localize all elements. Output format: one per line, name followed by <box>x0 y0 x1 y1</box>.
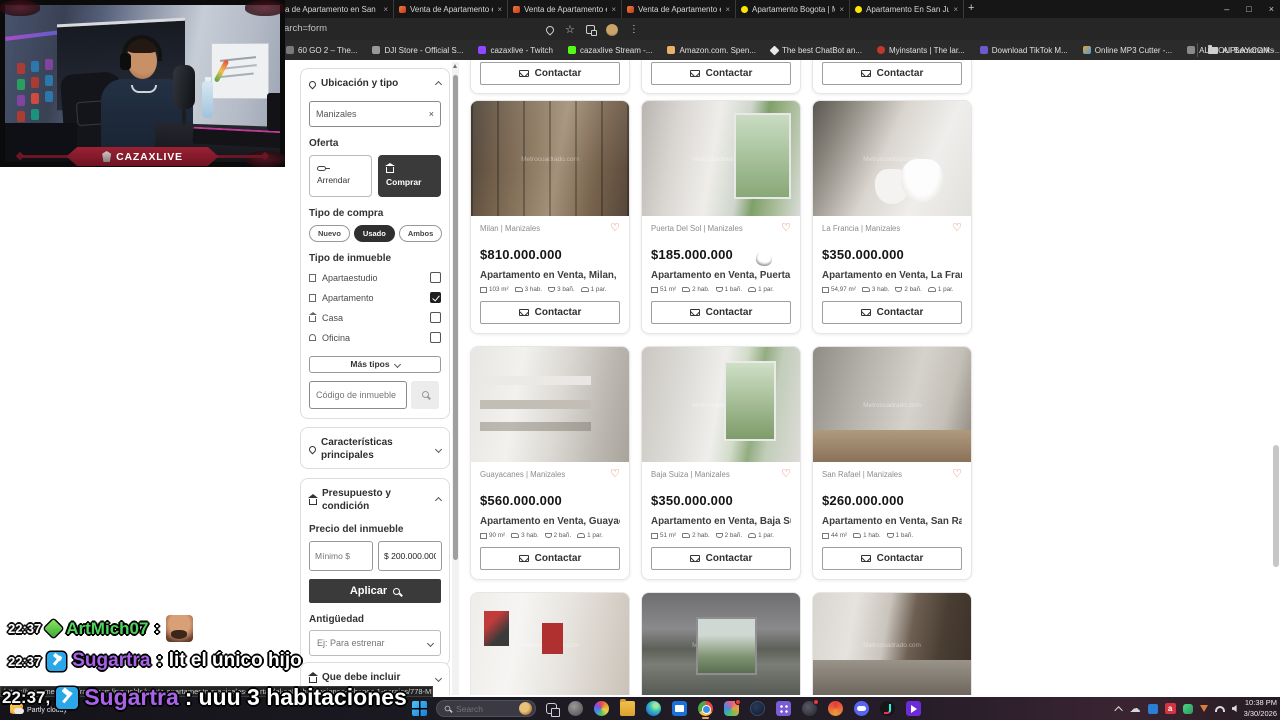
contactar-button[interactable]: Contactar <box>651 301 791 324</box>
section-header[interactable]: Características principales <box>309 437 441 462</box>
game-launcher-icon[interactable] <box>802 701 817 716</box>
bath-icon <box>548 287 555 292</box>
minimize-button[interactable]: – <box>1224 4 1229 14</box>
bed-icon <box>511 533 519 538</box>
bed-icon <box>682 287 690 292</box>
listing-title[interactable]: Apartamento en Venta, Milan, Ma... <box>480 270 620 281</box>
listing-card[interactable]: Metrocuadrado.com La Francia | Manizales… <box>812 100 972 334</box>
listing-specs: 90 m² 3 hab. 2 bañ. 1 par. <box>480 532 620 539</box>
profile-avatar[interactable] <box>606 24 618 36</box>
listing-card[interactable]: Metrocuadrado.com Puerta Del Sol | Maniz… <box>641 100 801 334</box>
house-icon <box>386 167 394 173</box>
checkbox-apartamento-checked[interactable] <box>430 292 441 303</box>
listing-title[interactable]: Apartamento en Venta, La Francia... <box>822 270 962 281</box>
windows-taskbar: Partly cloudy ☁ <box>0 697 1280 720</box>
window-controls: – □ × <box>1224 0 1274 18</box>
parking-icon <box>748 287 756 292</box>
favorite-heart-icon[interactable]: ♡ <box>610 469 620 479</box>
listing-card[interactable]: Metrocuadrado.com Baja Suiza | Manizales… <box>641 346 801 580</box>
precio-maximo-input[interactable] <box>378 541 442 571</box>
listing-photo[interactable]: Metrocuadrado.com <box>642 101 800 216</box>
listing-location: Guayacanes | Manizales <box>480 470 565 479</box>
location-search-box: × <box>309 101 441 127</box>
water-bottle <box>202 81 213 118</box>
search-icon <box>393 588 400 595</box>
start-button[interactable] <box>412 701 427 716</box>
chevron-down-icon <box>435 446 442 453</box>
listing-location: Puerta Del Sol | Manizales <box>651 224 743 233</box>
listing-location: Milan | Manizales <box>480 224 540 233</box>
tab-6[interactable]: Apartamento En San Juan Bosc × <box>850 0 964 18</box>
listing-specs: 54,97 m² 3 hab. 2 bañ. 1 par. <box>822 286 962 293</box>
discord-icon[interactable] <box>854 701 869 716</box>
contactar-button[interactable]: Contactar <box>651 547 791 570</box>
tabs-container: a de Apartamento en San × Venta de Apart… <box>280 0 964 18</box>
listing-price: $810.000.000 <box>480 247 620 262</box>
favorite-heart-icon[interactable]: ♡ <box>952 223 962 233</box>
location-pin-icon[interactable] <box>544 24 555 35</box>
bookmark-favicon <box>980 46 988 54</box>
listing-title[interactable]: Apartamento en Venta, Guayacan... <box>480 516 620 527</box>
steam-icon[interactable] <box>750 701 765 716</box>
chat-username[interactable]: ArtMich07 <box>66 619 148 639</box>
section-header[interactable]: Que debe incluir <box>309 672 441 685</box>
webcam-photo <box>5 5 280 162</box>
bookmark-favicon <box>1187 46 1195 54</box>
tab-title: Venta de Apartamento en Oro <box>410 5 493 14</box>
building-icon <box>309 294 316 302</box>
toolbar-icons: ☆ ⋮ <box>546 21 1272 38</box>
weather-icon <box>10 701 23 714</box>
notification-dot <box>813 699 819 705</box>
parking-icon <box>748 533 756 538</box>
bookmark-item[interactable]: 60 GO 2 – The... <box>286 46 357 55</box>
favorite-heart-icon[interactable]: ♡ <box>781 469 791 479</box>
listing-card-partial[interactable]: Contactar <box>641 60 801 94</box>
status-bar-url: https://www.metrocuadrado.com/inmueble/v… <box>0 686 433 697</box>
favorite-heart-icon[interactable]: ♡ <box>781 223 791 233</box>
listing-photo[interactable]: Metrocuadrado.com <box>813 347 971 462</box>
green-tray-icon[interactable] <box>1183 704 1193 714</box>
bookmark-item-twitch[interactable]: cazaxlive - Twitch <box>478 46 553 55</box>
bookmark-item[interactable]: DJI Store - Official S... <box>372 46 463 55</box>
pill-nuevo[interactable]: Nuevo <box>309 225 350 242</box>
shirt-collar <box>131 85 157 93</box>
gallery-app-icon[interactable] <box>724 701 739 716</box>
listing-photo[interactable]: Metrocuadrado.com <box>471 347 629 462</box>
envelope-icon <box>861 70 871 77</box>
listing-title[interactable]: Apartamento en Venta, San Rafae... <box>822 516 962 527</box>
chevron-down-icon <box>394 360 401 367</box>
filter-section-presupuesto: Presupuesto y condición Precio del inmue… <box>300 478 450 666</box>
listing-specs: 51 m² 2 hab. 2 bañ. 1 par. <box>651 532 791 539</box>
listing-price: $560.000.000 <box>480 493 620 508</box>
listing-location: Baja Suiza | Manizales <box>651 470 730 479</box>
mas-tipos-button[interactable]: Más tipos <box>309 356 441 373</box>
phone-stand <box>267 93 280 131</box>
type-apartaestudio[interactable]: Apartaestudio <box>309 268 441 288</box>
app-icon[interactable] <box>568 701 583 716</box>
envelope-icon <box>690 309 700 316</box>
tab-title: Venta de Apartamento en Av c <box>638 5 721 14</box>
checkbox-casa[interactable] <box>430 312 441 323</box>
filter-section-ubicacion: Ubicación y tipo × Oferta Arrendar Compr… <box>300 68 450 419</box>
listing-card[interactable]: Metrocuadrado.com Guayacanes | Manizales… <box>470 346 630 580</box>
office-icon <box>309 334 316 341</box>
favorite-heart-icon[interactable]: ♡ <box>952 469 962 479</box>
location-pin-icon <box>308 79 318 89</box>
listing-photo-partial[interactable]: Metrocuadrado.com <box>470 592 630 695</box>
precio-label: Precio del inmueble <box>309 524 441 535</box>
chevron-up-icon <box>435 497 442 504</box>
listing-specs: 44 m² 1 hab. 1 bañ. <box>822 532 962 539</box>
tab-close-icon[interactable]: × <box>953 5 958 14</box>
chat-text: lit el único hijo <box>169 650 302 672</box>
area-icon <box>651 533 658 539</box>
all-bookmarks-button[interactable]: All Bookmarks <box>1197 43 1274 57</box>
tab-2[interactable]: Venta de Apartamento en Oro × <box>394 0 508 18</box>
bed-icon <box>515 287 523 292</box>
section-title: Que debe incluir <box>322 672 431 685</box>
listing-title[interactable]: Apartamento en Venta, Puerta Del... <box>651 270 791 281</box>
parking-icon <box>581 287 589 292</box>
section-title: Ubicación y tipo <box>321 78 431 91</box>
tab-close-icon[interactable]: × <box>611 5 616 14</box>
listing-card[interactable]: Metrocuadrado.com Milan | Manizales♡ $81… <box>470 100 630 334</box>
red-a-tray-icon[interactable]: a <box>1165 703 1176 714</box>
bath-icon <box>895 287 902 292</box>
bookmark-favicon <box>286 46 294 54</box>
stream-banner-wrap: CAZAXLIVE <box>0 147 285 167</box>
twitch-icon <box>478 46 486 54</box>
taskbar-search[interactable] <box>436 700 536 717</box>
chat-message: 22:37 ArtMich07 : <box>8 615 193 642</box>
app-grid-icon[interactable] <box>776 701 791 716</box>
favorite-heart-icon[interactable]: ♡ <box>610 223 620 233</box>
antiguedad-label: Antigüedad <box>309 614 441 625</box>
chevron-down-icon <box>427 639 434 646</box>
envelope-icon <box>519 70 529 77</box>
listing-photo-partial[interactable]: Metrocuadrado.com <box>812 592 972 695</box>
envelope-icon <box>690 70 700 77</box>
bluetooth-icon[interactable] <box>1148 704 1158 714</box>
search-icon <box>445 706 451 712</box>
screen: a de Apartamento en San × Venta de Apart… <box>0 0 1280 720</box>
bath-icon <box>716 287 723 292</box>
photos-app-icon[interactable] <box>594 701 609 716</box>
listing-specs: 103 m² 3 hab. 3 bañ. 1 par. <box>480 286 620 293</box>
clear-icon[interactable]: × <box>429 109 434 119</box>
type-casa[interactable]: Casa <box>309 308 441 328</box>
listing-location: La Francia | Manizales <box>822 224 900 233</box>
folder-icon <box>1208 47 1218 54</box>
area-icon <box>822 287 829 293</box>
tab-3[interactable]: Venta de Apartamento en Ama × <box>508 0 622 18</box>
area-icon <box>822 533 829 539</box>
tab-close-icon[interactable]: × <box>839 5 844 14</box>
bookmark-item[interactable]: Myinstants | The lar... <box>877 46 965 55</box>
codigo-search-button[interactable] <box>411 381 439 409</box>
precio-minimo-input[interactable] <box>309 541 373 571</box>
weather-widget[interactable]: Partly cloudy <box>10 701 67 714</box>
price-inputs <box>309 541 441 571</box>
arrendar-button[interactable]: Arrendar <box>309 155 372 197</box>
media-app-icon[interactable] <box>906 701 921 716</box>
location-search-input[interactable] <box>316 109 425 119</box>
contactar-button[interactable]: Contactar <box>822 62 962 85</box>
taskbar-search-input[interactable] <box>456 704 514 714</box>
metrocuadrado-favicon <box>627 6 634 13</box>
envelope-icon <box>861 555 871 562</box>
listing-price: $260.000.000 <box>822 493 962 508</box>
tab-1[interactable]: a de Apartamento en San × <box>280 0 394 18</box>
aplicar-button[interactable]: Aplicar <box>309 579 441 603</box>
download-arrow-icon[interactable] <box>1200 705 1208 712</box>
kick-icon <box>568 46 576 54</box>
section-title: Características principales <box>321 437 431 462</box>
house-icon <box>309 677 317 683</box>
bath-icon <box>887 533 894 538</box>
page-scrollbar-thumb[interactable] <box>1273 445 1279 567</box>
tipo-compra-label: Tipo de compra <box>309 208 441 219</box>
envelope-icon <box>861 309 871 316</box>
tab-title: Apartamento Bogota | Mercad <box>752 5 835 14</box>
metrocuadrado-favicon <box>513 6 520 13</box>
envelope-icon <box>519 309 529 316</box>
checkbox-apartaestudio[interactable] <box>430 272 441 283</box>
contactar-button[interactable]: Contactar <box>480 62 620 85</box>
stream-banner: CAZAXLIVE <box>67 147 219 166</box>
area-icon <box>480 287 487 293</box>
tab-close-icon[interactable]: × <box>725 5 730 14</box>
edge-browser-icon[interactable] <box>646 701 661 716</box>
address-bar-text[interactable]: arch=form <box>284 23 327 34</box>
area-icon <box>651 287 658 293</box>
listing-photo-partial[interactable]: Metrocuadrado.com <box>641 592 801 695</box>
listing-card[interactable]: Metrocuadrado.com San Rafael | Manizales… <box>812 346 972 580</box>
filter-panel-scrollbar[interactable] <box>452 62 459 695</box>
bookmark-star-icon[interactable]: ☆ <box>565 25 575 35</box>
frame-corner-decoration <box>0 0 40 16</box>
listing-price: $350.000.000 <box>651 493 791 508</box>
listing-photo[interactable]: Metrocuadrado.com <box>813 101 971 216</box>
clock-time: 10:38 PM <box>1244 698 1277 708</box>
clock-date: 3/30/2026 <box>1244 709 1277 719</box>
tab-close-icon[interactable]: × <box>497 5 502 14</box>
bed-icon <box>853 533 861 538</box>
system-tray: ☁ a 10:38 PM 3/30/2026 <box>1117 697 1277 720</box>
antiguedad-select[interactable] <box>309 630 441 656</box>
bed-icon <box>682 533 690 538</box>
bookmark-item[interactable]: Online MP3 Cutter -... <box>1083 46 1172 55</box>
key-icon <box>317 166 326 171</box>
section-title: Presupuesto y condición <box>322 488 431 513</box>
frame-corner-decoration <box>245 0 285 16</box>
type-oficina[interactable]: Oficina <box>309 328 441 348</box>
close-window-button[interactable]: × <box>1269 4 1274 14</box>
amazon-icon <box>667 46 675 54</box>
tab-groups-icon[interactable] <box>586 25 595 34</box>
chat-timestamp: 22:37 <box>8 621 41 636</box>
tab-5[interactable]: Apartamento Bogota | Mercad × <box>736 0 850 18</box>
volume-icon[interactable] <box>1232 705 1237 712</box>
scroll-up-arrow[interactable] <box>453 64 457 68</box>
search-highlight-image <box>519 702 532 715</box>
bath-icon <box>716 533 723 538</box>
antiguedad-placeholder[interactable] <box>317 638 428 648</box>
browser-menu-icon[interactable]: ⋮ <box>629 24 639 35</box>
listing-card-partial[interactable]: Contactar <box>812 60 972 94</box>
vip-badge-icon <box>45 619 63 637</box>
browser-app-icon[interactable] <box>828 701 843 716</box>
listing-photo[interactable]: Metrocuadrado.com <box>642 347 800 462</box>
file-explorer-icon[interactable] <box>620 701 635 716</box>
filter-section-caracteristicas: Características principales <box>300 427 450 469</box>
pill-ambos[interactable]: Ambos <box>399 225 442 242</box>
bookmark-favicon <box>769 45 779 55</box>
tipo-inmueble-label: Tipo de inmueble <box>309 253 441 264</box>
chevron-up-icon <box>435 81 442 88</box>
listing-title[interactable]: Apartamento en Venta, Baja Suiza... <box>651 516 791 527</box>
checkbox-oficina[interactable] <box>430 332 441 343</box>
listing-photo[interactable]: Metrocuadrado.com <box>471 101 629 216</box>
envelope-icon <box>690 555 700 562</box>
listing-price: $350.000.000 <box>822 247 962 262</box>
taskbar-clock[interactable]: 10:38 PM 3/30/2026 <box>1244 698 1277 718</box>
tab-title: Venta de Apartamento en Ama <box>524 5 607 14</box>
offer-buttons: Arrendar Comprar <box>309 155 441 197</box>
contactar-button[interactable]: Contactar <box>480 301 620 324</box>
new-tab-button[interactable]: + <box>968 2 974 14</box>
bookmark-favicon <box>1083 46 1091 54</box>
chat-username[interactable]: Sugartra <box>72 650 150 672</box>
bookmark-item-kick[interactable]: cazaxlive Stream -... <box>568 46 652 55</box>
mercadolibre-favicon <box>741 6 748 13</box>
listing-specs: 51 m² 2 hab. 1 bañ. 1 par. <box>651 286 791 293</box>
contactar-button[interactable]: Contactar <box>651 62 791 85</box>
building-icon <box>309 274 316 282</box>
bookmark-favicon <box>372 46 380 54</box>
webcam-overlay: CAZAXLIVE <box>0 0 285 167</box>
bath-icon <box>545 533 552 538</box>
chat-separator: : <box>154 620 159 638</box>
chat-emote <box>166 615 193 642</box>
search-icon <box>422 391 429 398</box>
task-view-icon[interactable] <box>546 703 557 714</box>
bookmark-item-amazon[interactable]: Amazon.com. Spen... <box>667 46 755 55</box>
comprar-button-selected[interactable]: Comprar <box>378 155 441 197</box>
section-header[interactable]: Presupuesto y condición <box>309 488 441 513</box>
bookmark-item[interactable]: The best ChatBot an... <box>771 46 862 55</box>
maximize-button[interactable]: □ <box>1246 4 1251 14</box>
type-apartamento[interactable]: Apartamento <box>309 288 441 308</box>
chrome-icon-active[interactable] <box>698 701 713 716</box>
notification-dot <box>735 699 741 705</box>
contactar-button[interactable]: Contactar <box>480 547 620 570</box>
tab-4[interactable]: Venta de Apartamento en Av c × <box>622 0 736 18</box>
mercadolibre-favicon <box>855 6 862 13</box>
codigo-inmueble-input[interactable] <box>309 381 407 409</box>
metrocuadrado-favicon <box>399 6 406 13</box>
chevron-down-icon <box>435 675 442 682</box>
wall-collectibles <box>17 63 25 74</box>
house-icon <box>309 316 316 322</box>
tab-close-icon[interactable]: × <box>383 5 388 14</box>
target-icon <box>308 445 318 455</box>
pill-usado-selected[interactable]: Usado <box>354 225 395 242</box>
contactar-button[interactable]: Contactar <box>822 547 962 570</box>
headphone-cup <box>120 53 131 70</box>
codigo-row <box>309 381 441 409</box>
chat-separator: : <box>156 650 162 672</box>
bed-icon <box>862 287 870 292</box>
moderator-badge-icon <box>47 652 66 671</box>
section-header[interactable]: Ubicación y tipo <box>309 78 441 91</box>
tab-title: Apartamento En San Juan Bosc <box>866 5 949 14</box>
tab-title: a de Apartamento en San <box>285 5 379 14</box>
tiktok-icon[interactable] <box>880 701 895 716</box>
parking-icon <box>928 287 936 292</box>
contactar-button[interactable]: Contactar <box>822 301 962 324</box>
bookmark-favicon <box>877 46 885 54</box>
wifi-icon[interactable] <box>1215 706 1225 712</box>
listing-location: San Rafael | Manizales <box>822 470 902 479</box>
bookmarks-list: 60 GO 2 – The... DJI Store - Official S.… <box>286 40 1280 60</box>
stream-logo-icon <box>102 151 111 162</box>
listing-card-partial[interactable]: Contactar <box>470 60 630 94</box>
area-icon <box>480 533 487 539</box>
microsoft-store-icon[interactable] <box>672 701 687 716</box>
scrollbar-thumb[interactable] <box>453 75 458 560</box>
chat-message: 22:37 Sugartra : lit el único hijo <box>8 650 302 672</box>
house-icon <box>309 499 317 505</box>
bookmark-item[interactable]: Download TikTok M... <box>980 46 1068 55</box>
tipo-compra-pills: Nuevo Usado Ambos <box>309 225 441 242</box>
onedrive-icon[interactable]: ☁ <box>1130 704 1141 714</box>
microphone <box>173 65 195 109</box>
envelope-icon <box>519 555 529 562</box>
chat-timestamp: 22:37 <box>8 654 41 669</box>
parking-icon <box>577 533 585 538</box>
oferta-label: Oferta <box>309 138 441 149</box>
active-app-indicator <box>702 717 709 719</box>
